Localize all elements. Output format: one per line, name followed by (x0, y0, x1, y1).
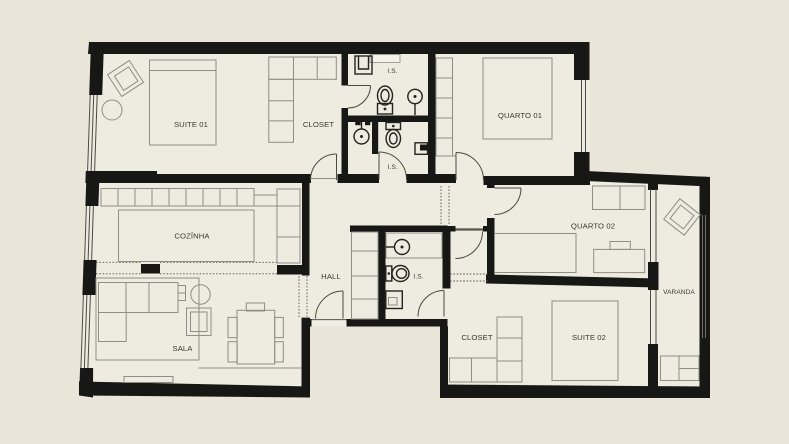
svg-text:VARANDA: VARANDA (663, 289, 695, 296)
svg-text:QUARTO 02: QUARTO 02 (571, 222, 615, 231)
svg-text:CLOSET: CLOSET (303, 120, 335, 129)
svg-text:QUARTO 01: QUARTO 01 (498, 111, 542, 120)
svg-text:I.S.: I.S. (387, 68, 397, 75)
svg-text:I.S.: I.S. (413, 274, 423, 281)
svg-text:SALA: SALA (172, 344, 193, 353)
svg-text:CLOSET: CLOSET (461, 333, 493, 342)
svg-text:SUITE 01: SUITE 01 (174, 120, 208, 129)
svg-text:HALL: HALL (321, 272, 341, 281)
svg-text:I.S.: I.S. (388, 164, 398, 171)
svg-text:SUITE 02: SUITE 02 (572, 333, 606, 342)
svg-text:COZÍNHA: COZÍNHA (174, 232, 210, 241)
